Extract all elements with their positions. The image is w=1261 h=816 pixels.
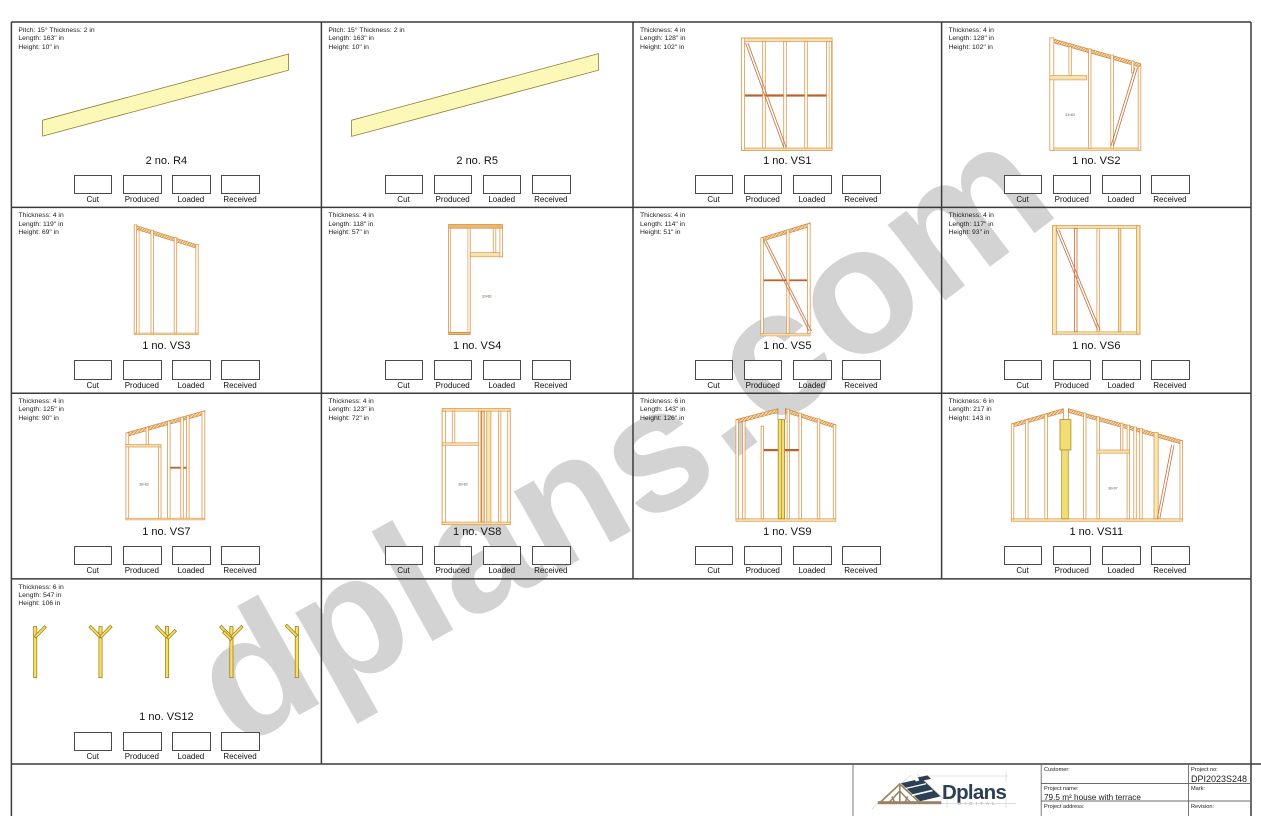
svg-text:33×83: 33×83	[482, 295, 492, 299]
svg-text:36×83: 36×83	[140, 483, 150, 487]
svg-text:33×83: 33×83	[1065, 113, 1075, 117]
svg-text:36×97: 36×97	[1108, 487, 1118, 491]
svg-text:DIGITAL: DIGITAL	[958, 801, 998, 806]
svg-text:36×83: 36×83	[458, 483, 468, 487]
